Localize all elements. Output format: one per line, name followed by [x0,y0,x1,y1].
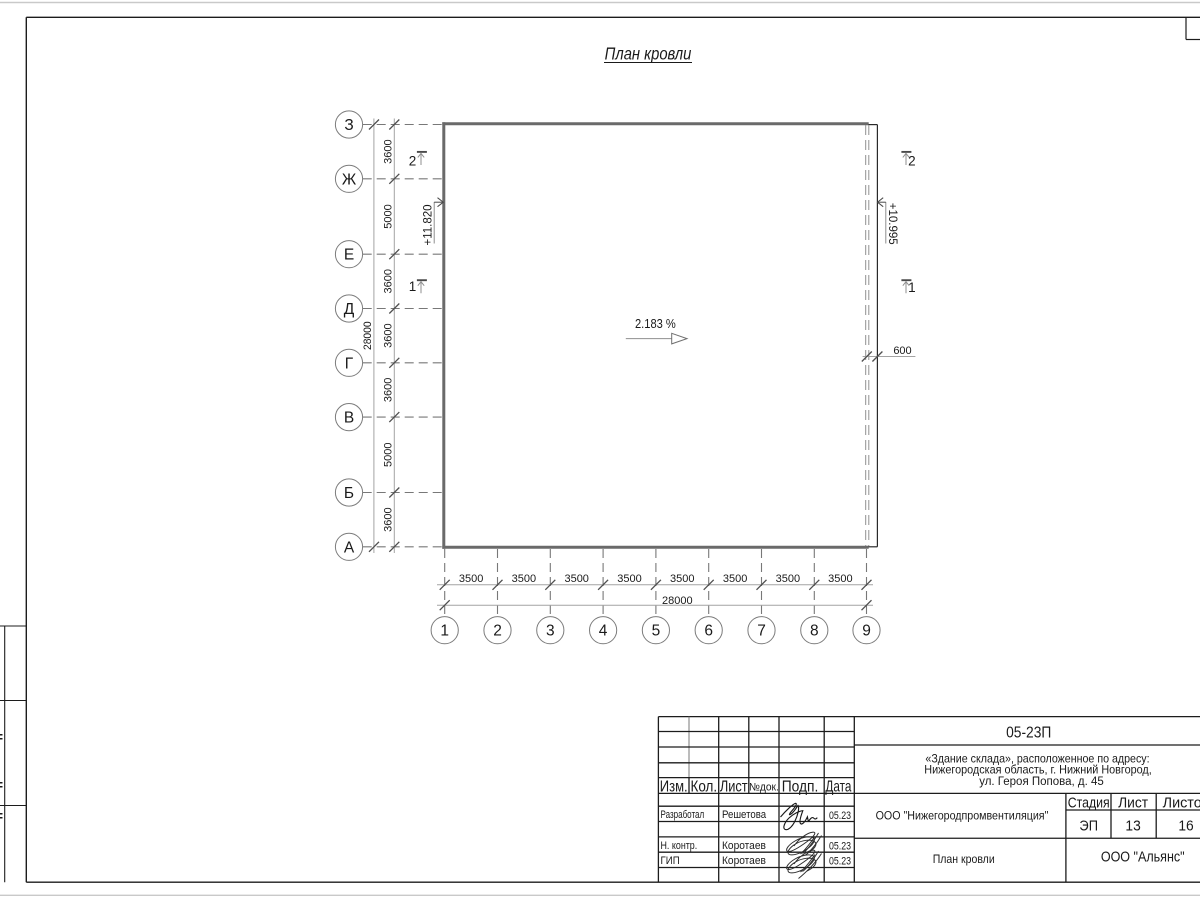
svg-text:ЭП: ЭП [1079,816,1098,833]
svg-text:5: 5 [652,623,661,640]
svg-text:Б: Б [344,485,354,502]
svg-text:3: 3 [546,623,555,640]
svg-text:+10.995: +10.995 [886,203,898,245]
svg-text:3500: 3500 [512,573,536,585]
svg-text:Лист: Лист [1118,795,1148,812]
svg-text:Нижегородская область, г. Нижн: Нижегородская область, г. Нижний Новгоро… [924,764,1151,776]
svg-text:Подп.: Подп. [782,779,819,796]
svg-text:2: 2 [409,153,417,168]
svg-text:Разработал: Разработал [661,809,705,822]
svg-text:Дата: Дата [825,778,851,795]
svg-text:А: А [344,539,355,556]
svg-text:28000: 28000 [362,321,374,350]
svg-text:1: 1 [908,280,916,295]
svg-text:1: 1 [409,279,417,294]
svg-text:3600: 3600 [383,139,395,163]
svg-text:3600: 3600 [383,378,395,402]
svg-text:600: 600 [893,345,911,357]
svg-text:Стадия: Стадия [1068,794,1110,810]
svg-text:5000: 5000 [383,443,395,467]
svg-text:28000: 28000 [662,595,693,607]
svg-text:+11.820: +11.820 [423,204,435,245]
svg-text:В: В [344,410,354,427]
svg-text:3600: 3600 [383,323,395,347]
svg-text:Н. контр.: Н. контр. [661,840,698,852]
svg-text:3600: 3600 [383,269,395,293]
svg-text:3500: 3500 [459,573,483,585]
svg-text:1: 1 [440,623,449,640]
svg-text:05-23П: 05-23П [1006,725,1051,742]
svg-text:3500: 3500 [617,573,641,585]
svg-text:Изм.: Изм. [660,778,688,795]
svg-text:6: 6 [704,623,713,640]
svg-text:5000: 5000 [383,204,395,228]
svg-text:ООО "Альянс": ООО "Альянс" [1101,847,1185,864]
svg-text:13: 13 [1125,818,1140,835]
svg-text:3500: 3500 [828,573,852,585]
svg-text:7: 7 [757,623,766,640]
svg-text:8: 8 [810,623,819,640]
svg-text:2.183 %: 2.183 % [635,317,676,332]
svg-text:05.23: 05.23 [829,841,851,853]
svg-text:Ж: Ж [342,171,357,188]
svg-text:4: 4 [599,623,608,640]
svg-text:2: 2 [493,623,502,640]
svg-text:ГИП: ГИП [661,856,680,868]
svg-text:Е: Е [344,247,354,264]
svg-text:05.23: 05.23 [829,810,851,822]
svg-text:План кровли: План кровли [605,44,692,63]
svg-text:№док.: №док. [749,781,779,793]
svg-text:3500: 3500 [776,573,800,585]
svg-text:9: 9 [862,623,871,640]
svg-text:05.23: 05.23 [829,856,851,868]
svg-text:Коротаев: Коротаев [722,855,766,867]
svg-text:З: З [344,117,353,134]
svg-text:Решетова: Решетова [722,809,766,821]
svg-text:3500: 3500 [670,573,694,585]
svg-text:2: 2 [908,153,916,168]
svg-text:16: 16 [1178,818,1193,835]
svg-text:Д: Д [344,301,355,318]
svg-text:Г: Г [345,355,354,372]
svg-text:План кровли: План кровли [933,853,995,866]
svg-text:3600: 3600 [383,507,395,531]
svg-text:Лист: Лист [720,778,748,795]
svg-text:Листов: Листов [1163,795,1200,811]
svg-text:ул. Героя Попова, д. 45: ул. Героя Попова, д. 45 [979,776,1104,788]
svg-text:Коротаев: Коротаев [722,839,766,851]
svg-text:3500: 3500 [564,573,588,585]
svg-text:Кол.: Кол. [690,778,717,795]
svg-text:3500: 3500 [723,573,747,585]
svg-text:ООО "Нижегородпромвентиляция": ООО "Нижегородпромвентиляция" [876,810,1049,823]
